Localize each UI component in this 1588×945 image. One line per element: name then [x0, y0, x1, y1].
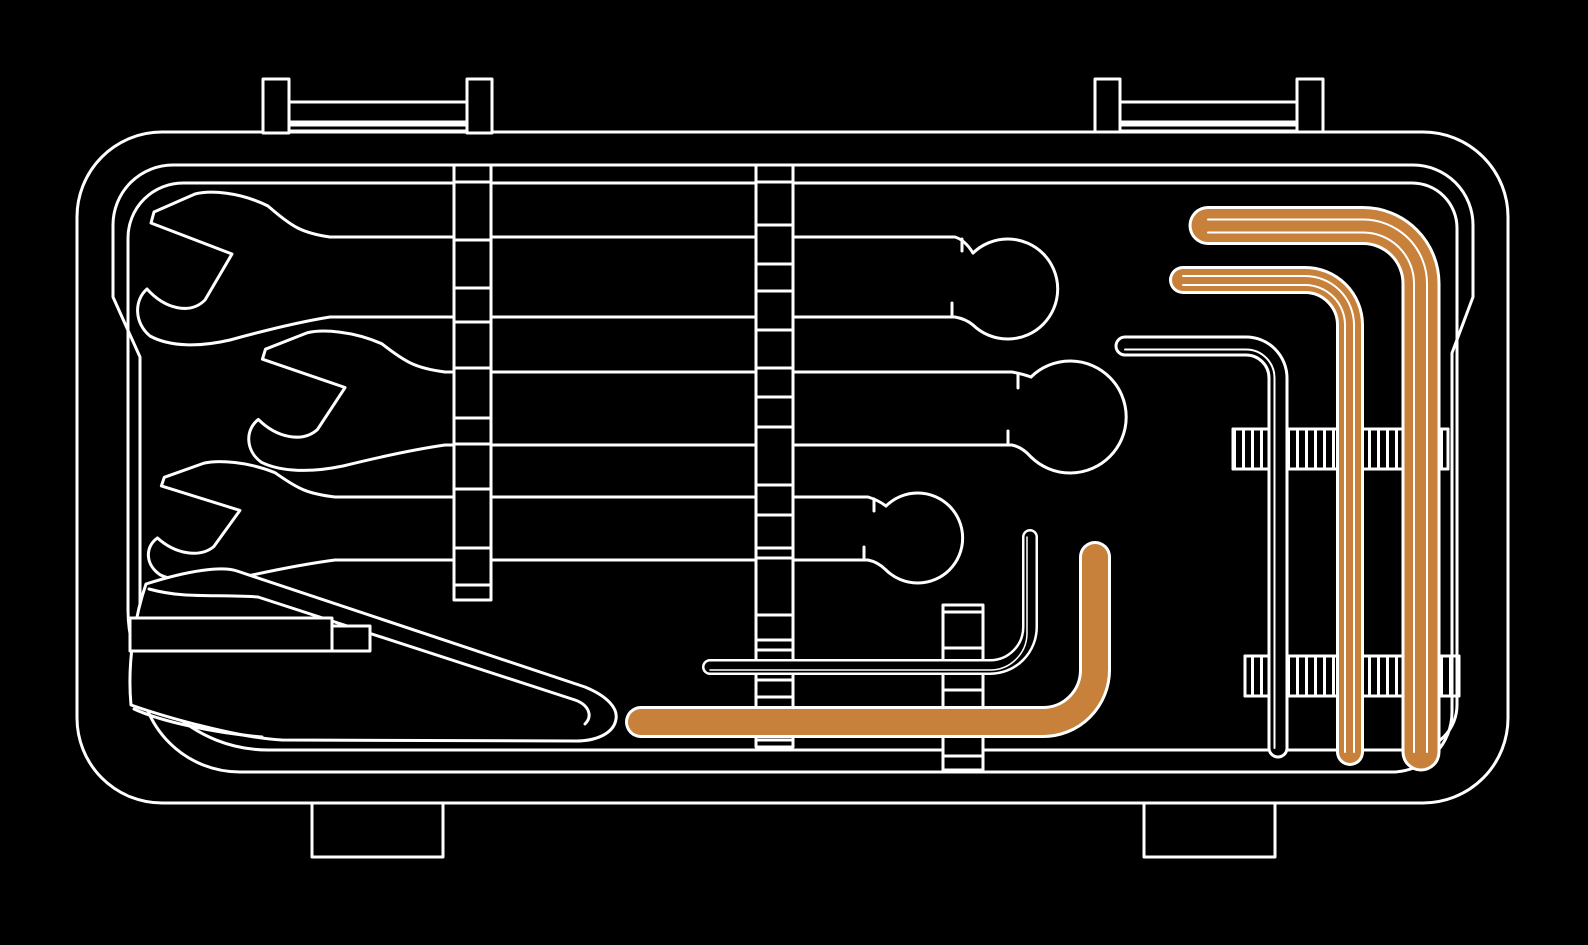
- latch-post: [263, 79, 289, 133]
- strap-small: [943, 605, 983, 770]
- latch-post: [467, 79, 492, 133]
- pry-bar-band: [130, 618, 332, 651]
- latch-bar: [1120, 102, 1297, 122]
- toolbox-illustration: [0, 0, 1588, 945]
- latch-bar: [289, 102, 467, 122]
- foot-right: [1144, 803, 1275, 857]
- strap-body: [943, 605, 983, 770]
- strap-left: [454, 165, 491, 600]
- latch-bar-underline: [1120, 125, 1297, 131]
- latch-bar-underline: [289, 125, 467, 131]
- toolbox-canvas: [0, 0, 1588, 945]
- pry-bar-band-end: [332, 626, 370, 651]
- strap-body: [454, 165, 491, 600]
- latch-post: [1297, 79, 1323, 132]
- foot-left: [312, 803, 443, 857]
- latch-post: [1095, 79, 1120, 132]
